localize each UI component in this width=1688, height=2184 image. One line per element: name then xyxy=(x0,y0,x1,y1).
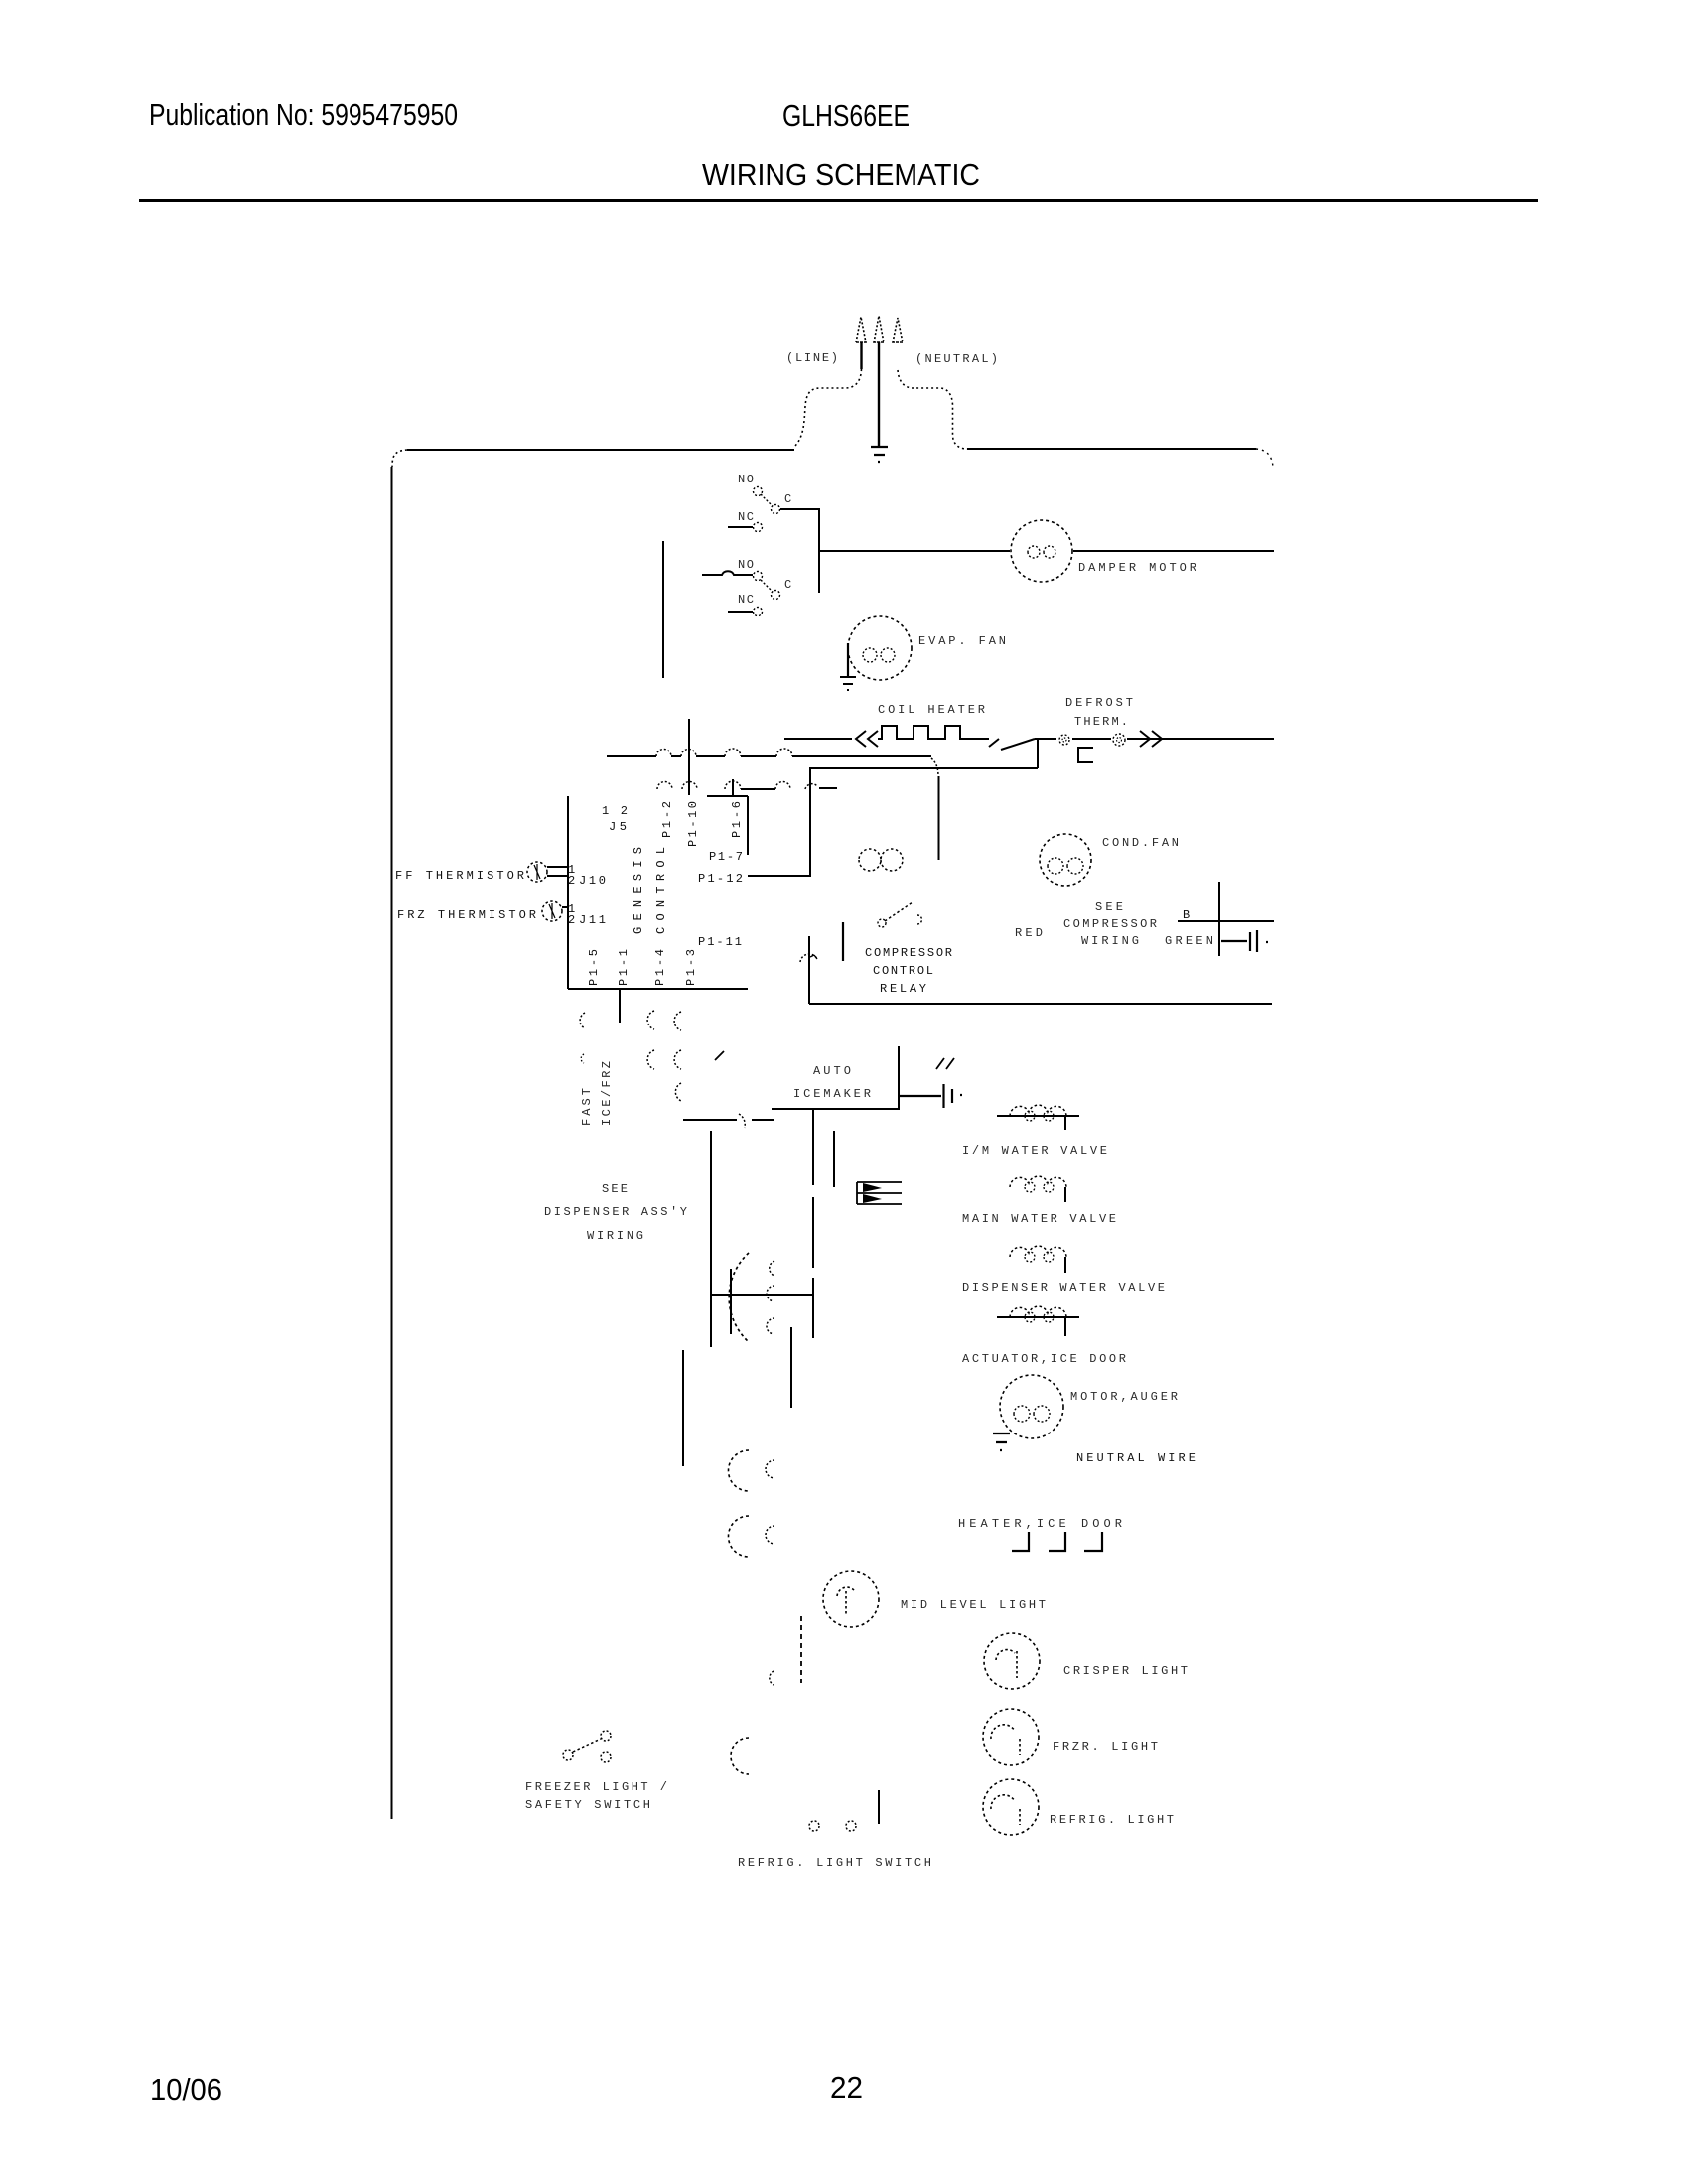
svg-text:J11: J11 xyxy=(579,913,606,927)
svg-text:REFRIG. LIGHT: REFRIG. LIGHT xyxy=(1050,1813,1174,1827)
svg-text:B: B xyxy=(1183,908,1190,922)
svg-text:C: C xyxy=(784,578,791,592)
svg-text:NC: NC xyxy=(738,593,754,607)
svg-text:J10: J10 xyxy=(579,874,606,887)
svg-text:2: 2 xyxy=(568,874,575,887)
svg-text:WIRING: WIRING xyxy=(587,1229,643,1243)
svg-text:MID LEVEL LIGHT: MID LEVEL LIGHT xyxy=(901,1598,1046,1612)
svg-text:SAFETY SWITCH: SAFETY SWITCH xyxy=(525,1798,650,1812)
svg-text:FREEZER LIGHT /: FREEZER LIGHT / xyxy=(525,1780,667,1794)
svg-text:GLHS66EE: GLHS66EE xyxy=(782,98,910,133)
svg-text:DEFROST: DEFROST xyxy=(1065,696,1133,710)
svg-text:CRISPER LIGHT: CRISPER LIGHT xyxy=(1063,1664,1188,1678)
svg-text:P1-4: P1-4 xyxy=(653,949,667,986)
svg-text:COIL HEATER: COIL HEATER xyxy=(878,703,985,717)
svg-text:22: 22 xyxy=(830,2070,863,2105)
svg-text:RED: RED xyxy=(1015,926,1043,940)
svg-text:C: C xyxy=(784,492,791,506)
svg-text:P1-10: P1-10 xyxy=(686,801,700,847)
svg-text:COMPRESSOR: COMPRESSOR xyxy=(1063,917,1157,931)
svg-text:DISPENSER WATER VALVE: DISPENSER WATER VALVE xyxy=(962,1281,1165,1295)
svg-text:WIRING: WIRING xyxy=(1081,934,1139,948)
svg-text:P1-3: P1-3 xyxy=(684,949,698,986)
svg-text:NO: NO xyxy=(738,473,754,486)
svg-text:FF THERMISTOR: FF THERMISTOR xyxy=(395,869,524,883)
svg-text:FAST: FAST xyxy=(580,1088,594,1126)
svg-text:(LINE): (LINE) xyxy=(786,351,838,365)
svg-text:DAMPER MOTOR: DAMPER MOTOR xyxy=(1078,561,1196,575)
svg-text:Publication No: 5995475950: Publication No: 5995475950 xyxy=(149,97,458,132)
svg-text:ICEMAKER: ICEMAKER xyxy=(793,1087,871,1101)
svg-text:P1-11: P1-11 xyxy=(698,935,742,949)
svg-text:CONTROL: CONTROL xyxy=(654,847,668,934)
svg-text:J5: J5 xyxy=(609,820,627,834)
svg-text:I/M WATER VALVE: I/M WATER VALVE xyxy=(962,1144,1107,1158)
svg-text:1 2: 1 2 xyxy=(602,804,628,818)
svg-text:SEE: SEE xyxy=(1095,900,1123,914)
svg-text:P1-2: P1-2 xyxy=(660,801,674,838)
svg-text:P1-5: P1-5 xyxy=(587,949,601,986)
svg-text:THERM.: THERM. xyxy=(1074,715,1128,729)
svg-text:FRZR. LIGHT: FRZR. LIGHT xyxy=(1053,1740,1158,1754)
svg-text:NO: NO xyxy=(738,558,754,572)
svg-text:COMPRESSOR: COMPRESSOR xyxy=(865,946,952,960)
svg-text:SEE: SEE xyxy=(602,1182,628,1196)
svg-text:GENESIS: GENESIS xyxy=(632,847,645,934)
svg-text:2: 2 xyxy=(568,913,575,927)
svg-text:MOTOR,AUGER: MOTOR,AUGER xyxy=(1070,1390,1178,1404)
svg-text:ICE/FRZ: ICE/FRZ xyxy=(600,1061,614,1126)
svg-text:NEUTRAL WIRE: NEUTRAL WIRE xyxy=(1076,1451,1196,1465)
svg-text:P1-12: P1-12 xyxy=(698,872,743,886)
svg-text:AUTO: AUTO xyxy=(813,1064,851,1078)
svg-text:ACTUATOR,ICE DOOR: ACTUATOR,ICE DOOR xyxy=(962,1352,1126,1366)
svg-text:P1-6: P1-6 xyxy=(730,801,744,838)
svg-text:RELAY: RELAY xyxy=(880,982,926,996)
svg-text:HEATER,ICE DOOR: HEATER,ICE DOOR xyxy=(958,1517,1122,1531)
svg-text:COND.FAN: COND.FAN xyxy=(1102,836,1179,850)
svg-text:P1-1: P1-1 xyxy=(617,949,631,986)
svg-text:GREEN: GREEN xyxy=(1165,934,1213,948)
svg-text:(NEUTRAL): (NEUTRAL) xyxy=(915,352,998,366)
svg-text:FRZ THERMISTOR: FRZ THERMISTOR xyxy=(397,908,536,922)
svg-text:DISPENSER ASS'Y: DISPENSER ASS'Y xyxy=(544,1205,687,1219)
svg-text:CONTROL: CONTROL xyxy=(873,964,933,978)
svg-text:REFRIG. LIGHT SWITCH: REFRIG. LIGHT SWITCH xyxy=(738,1856,931,1870)
svg-text:P1-7: P1-7 xyxy=(709,850,743,864)
svg-text:10/06: 10/06 xyxy=(150,2072,222,2107)
svg-text:EVAP. FAN: EVAP. FAN xyxy=(918,634,1006,648)
svg-text:MAIN WATER VALVE: MAIN WATER VALVE xyxy=(962,1212,1116,1226)
svg-text:WIRING SCHEMATIC: WIRING SCHEMATIC xyxy=(702,157,980,192)
svg-text:NC: NC xyxy=(738,510,754,524)
